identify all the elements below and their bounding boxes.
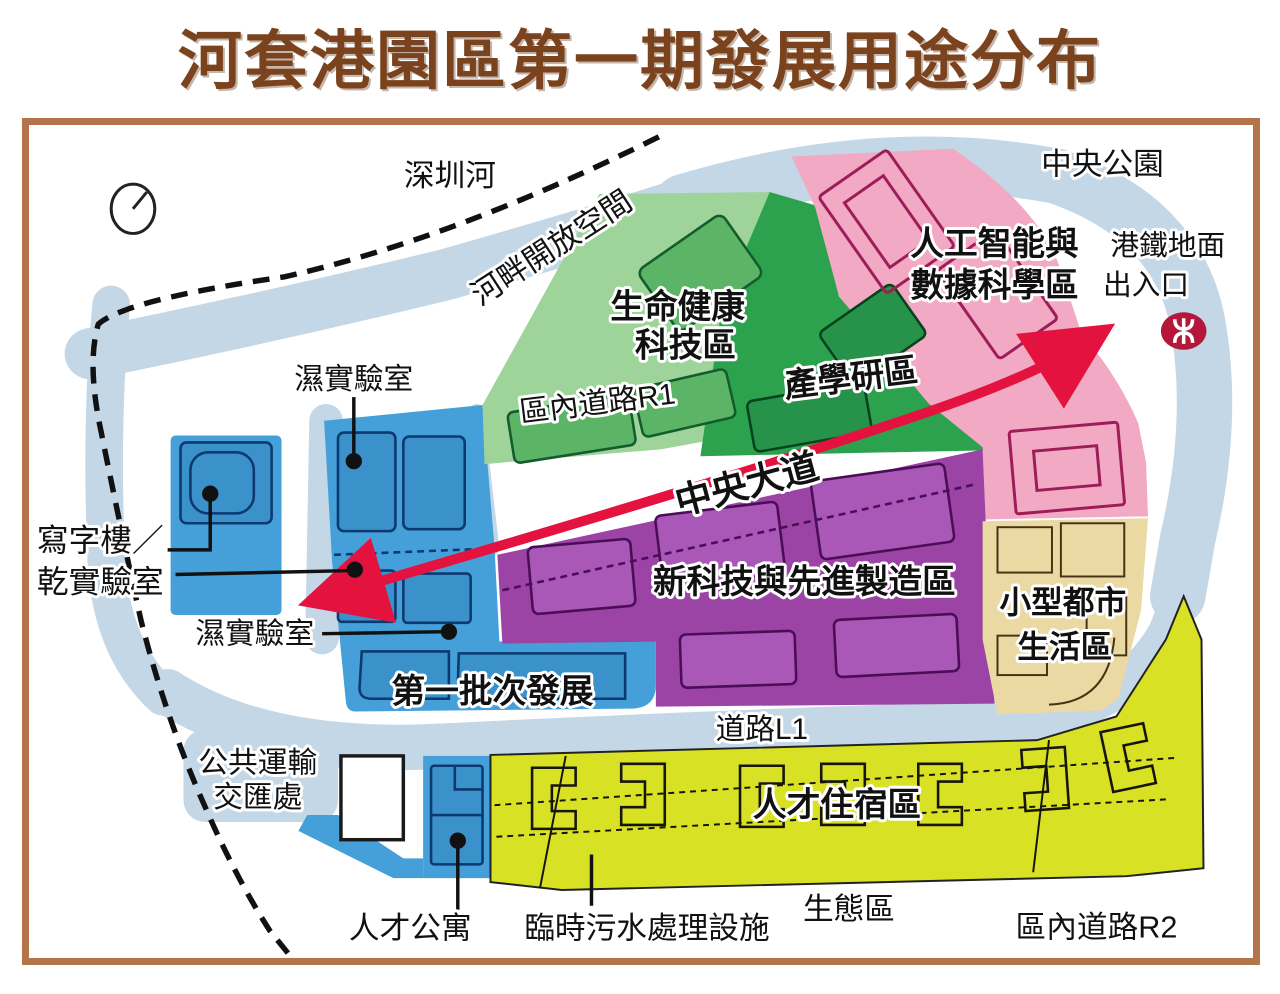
building-outline	[527, 539, 635, 615]
mtr-icon	[1161, 312, 1207, 349]
label-small-urban-2: 生活區	[1017, 628, 1112, 664]
label-ai-data-zone-2: 數據科學區	[910, 267, 1078, 305]
label-shenzhen-river: 深圳河	[404, 159, 496, 193]
label-office-2: 乾實驗室	[37, 563, 164, 599]
label-wet-lab-top: 濕實驗室	[294, 363, 413, 396]
building-outline	[338, 433, 395, 532]
label-road-l1: 道路L1	[716, 713, 808, 746]
building-outline	[403, 437, 464, 530]
label-district-road-r2: 區內道路R2	[1016, 910, 1178, 944]
label-life-health-zone-1: 生命健康	[610, 287, 745, 326]
building-outline	[810, 463, 954, 560]
page-title: 河套港園區第一期發展用途分布	[0, 10, 1280, 102]
building-outline	[181, 442, 272, 523]
label-mtr-entrance-2: 出入口	[1103, 270, 1189, 302]
leader-line	[322, 632, 446, 634]
building-outline	[680, 631, 797, 688]
label-ai-data-zone-1: 人工智能與	[910, 225, 1078, 263]
label-transport-1: 公共運輸	[198, 747, 317, 780]
development-map: 深圳河 河畔開放空間 中央公園 港鐵地面 出入口 人工智能與 數據科學區 生命健…	[29, 125, 1253, 958]
leader-dot	[442, 625, 455, 638]
label-central-park: 中央公園	[1041, 147, 1164, 181]
transport-interchange-block	[341, 756, 403, 840]
building-outline	[403, 574, 470, 623]
north-indicator-icon	[111, 184, 155, 233]
leader-dot	[347, 455, 360, 468]
building-outline	[834, 614, 960, 677]
page: { "title": "河套港園區第一期發展用途分布", "colors": {…	[0, 0, 1280, 994]
label-small-urban-1: 小型都市	[1000, 584, 1127, 620]
label-talent-apartment: 人才公寓	[349, 911, 472, 945]
central-gap-road	[322, 421, 326, 638]
label-mtr-entrance-1: 港鐵地面	[1110, 230, 1225, 262]
leader-dot	[204, 487, 217, 500]
label-first-batch: 第一批次發展	[391, 673, 593, 711]
label-sewage-facility: 臨時污水處理設施	[524, 911, 769, 945]
label-eco-zone: 生態區	[803, 893, 895, 927]
label-new-tech-zone: 新科技與先進製造區	[653, 563, 956, 601]
label-wet-lab-bottom: 濕實驗室	[195, 618, 314, 651]
label-life-health-zone-2: 科技區	[635, 327, 736, 365]
leader-dot	[348, 563, 361, 576]
leader-dot	[451, 834, 464, 847]
label-transport-2: 交匯處	[213, 781, 302, 814]
map-frame: 深圳河 河畔開放空間 中央公園 港鐵地面 出入口 人工智能與 數據科學區 生命健…	[22, 118, 1260, 965]
label-office-1: 寫字樓／	[37, 522, 164, 558]
label-talent-housing: 人才住宿區	[753, 786, 921, 824]
